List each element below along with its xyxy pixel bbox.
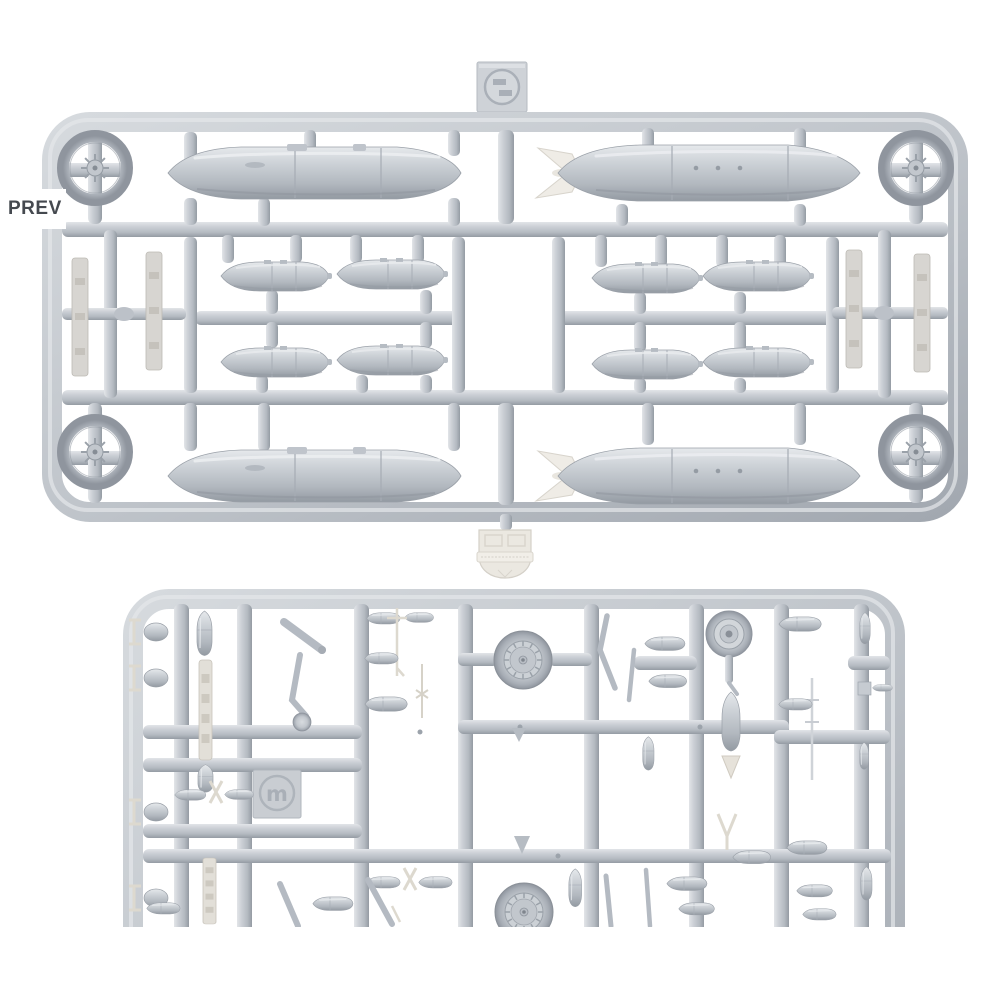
hub-wheel: [706, 611, 752, 694]
logo-plate: m: [253, 770, 301, 818]
drop-tank-large-bottom-left: [168, 447, 461, 502]
screenshot-root: m: [0, 0, 1000, 1000]
landing-gear-strut: [284, 622, 326, 731]
top-sprue: [50, 62, 958, 512]
carousel-prev-label: PREV: [8, 198, 62, 220]
sprue-tab-logo-icon: [477, 62, 527, 112]
drop-tank-large-bottom-right: [536, 448, 860, 504]
bottom-sprue: m: [129, 597, 895, 1000]
product-photo: m: [0, 0, 1000, 1000]
main-wheel: [494, 631, 552, 689]
sprues-photo-illustration: m: [0, 0, 1000, 1000]
tail-wheel: [495, 883, 553, 941]
drop-tank-large-top-right: [536, 145, 860, 201]
drop-tank-large-top-left: [168, 144, 461, 199]
carousel-prev-button[interactable]: PREV: [0, 189, 66, 229]
manufacturer-crest-emblem-icon: [477, 514, 533, 578]
logo-plate-letter: m: [266, 782, 288, 806]
